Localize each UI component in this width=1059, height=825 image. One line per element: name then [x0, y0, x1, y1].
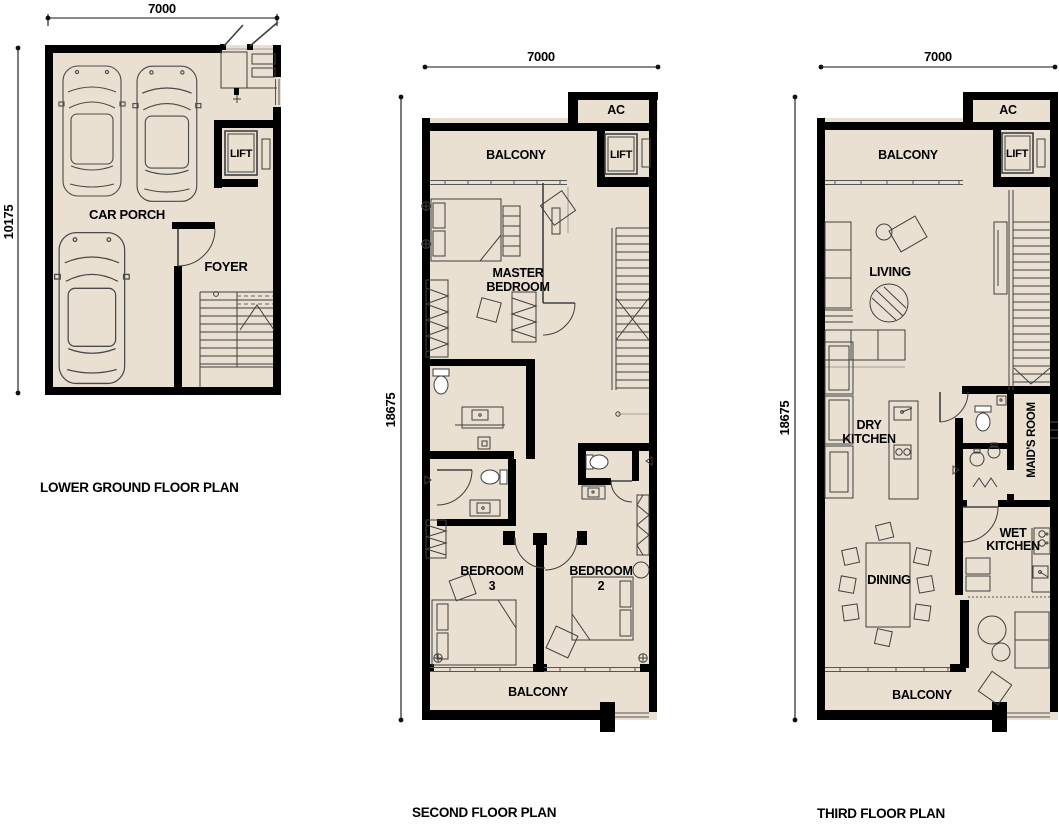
plan-third-title: THIRD FLOOR PLAN	[817, 806, 945, 821]
dim-width: 7000	[148, 1, 176, 16]
label-balcony-top: BALCONY	[878, 148, 939, 162]
label-bedroom2-1: BEDROOM	[569, 564, 632, 578]
label-maids-room: MAID'S ROOM	[1026, 402, 1038, 477]
plan-second-floor: 7000 18675	[383, 49, 660, 820]
label-dry-kitchen-2: KITCHEN	[842, 432, 896, 446]
floor-plan-sheet: 7000 10175	[0, 0, 1059, 825]
label-balcony-bottom: BALCONY	[508, 685, 569, 699]
label-lift: LIFT	[230, 148, 253, 160]
label-ac: AC	[999, 103, 1017, 117]
label-foyer: FOYER	[204, 259, 248, 274]
label-balcony-bottom: BALCONY	[892, 688, 953, 702]
label-balcony-top: BALCONY	[486, 148, 547, 162]
dim-width: 7000	[924, 49, 952, 64]
plan-lower-ground: 7000 10175	[1, 1, 281, 495]
label-bedroom3-2: 3	[489, 579, 496, 593]
label-master-2: BEDROOM	[486, 280, 549, 294]
plan-lower-ground-title: LOWER GROUND FLOOR PLAN	[40, 480, 239, 495]
label-dining: DINING	[867, 572, 911, 587]
label-wet-kitchen-2: KITCHEN	[986, 539, 1040, 553]
plan-second-title: SECOND FLOOR PLAN	[412, 805, 556, 820]
label-bedroom3-1: BEDROOM	[460, 564, 523, 578]
dim-height: 18675	[383, 393, 398, 428]
label-lift: LIFT	[610, 149, 633, 161]
label-car-porch: CAR PORCH	[89, 207, 165, 222]
plan-third-floor: 7000 18675	[777, 49, 1058, 821]
label-living: LIVING	[869, 264, 911, 279]
dim-height: 18675	[777, 401, 792, 436]
dim-width: 7000	[527, 49, 555, 64]
label-lift: LIFT	[1006, 148, 1029, 160]
label-ac: AC	[607, 103, 625, 117]
dim-height: 10175	[1, 205, 16, 240]
label-bedroom2-2: 2	[598, 579, 605, 593]
label-master-1: MASTER	[493, 266, 544, 280]
label-dry-kitchen-1: DRY	[856, 418, 882, 432]
floor-plans-drawing: 7000 10175	[0, 0, 1059, 825]
label-wet-kitchen-1: WET	[1000, 526, 1028, 540]
